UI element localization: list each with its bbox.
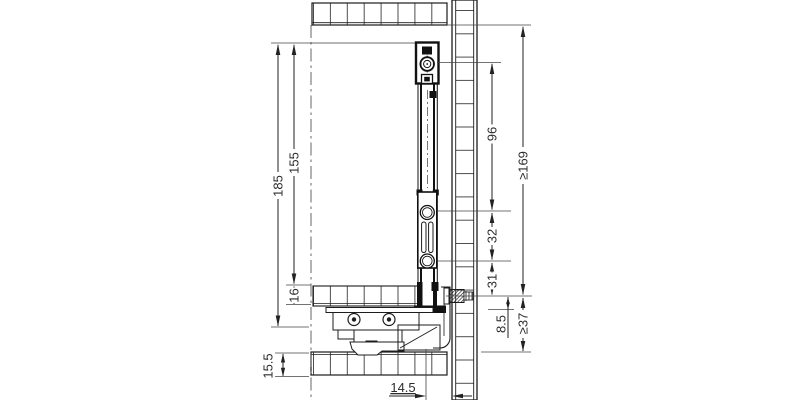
dimension-185: 185: [271, 44, 286, 327]
rear-fixing-bracket: [417, 190, 439, 269]
dim-label-8-5: 8.5: [494, 315, 509, 333]
dim-label-155: 155: [287, 152, 302, 174]
dimension-min-169: ≥169: [516, 26, 531, 295]
dim-label-96: 96: [485, 127, 500, 141]
catch-flag: [430, 91, 437, 98]
dim-label-16: 16: [287, 288, 302, 302]
drawer-side-profile: [414, 43, 446, 314]
dimension-min-37: ≥37: [516, 298, 531, 352]
dimension-155: 155: [287, 44, 302, 285]
dim-label-185: 185: [271, 175, 286, 197]
dim-label-14-5: 14.5: [390, 380, 415, 395]
dim-label-min-37: ≥37: [516, 313, 531, 335]
drawing-svg: 185 155 16 15.5: [0, 0, 800, 400]
dimension-15-5: 15.5: [261, 353, 286, 378]
rear-panel: [452, 0, 477, 400]
dim-label-32: 32: [485, 229, 500, 243]
cabinet-bottom-panel: [311, 352, 447, 375]
cabinet-top-panel: [312, 3, 447, 25]
dim-label-31: 31: [485, 274, 500, 288]
drawer-bottom-panel: [313, 286, 420, 306]
dimension-8-5: 8.5: [494, 297, 510, 338]
dim-label-15-5: 15.5: [261, 353, 276, 378]
dimension-16: 16: [287, 286, 302, 305]
dim-label-min-169: ≥169: [516, 151, 531, 180]
dimension-31: 31: [485, 263, 500, 296]
top-cap-fitting: [416, 43, 439, 84]
dimension-32: 32: [485, 213, 500, 261]
dimension-96: 96: [485, 63, 500, 211]
technical-drawing-canvas: 185 155 16 15.5: [0, 0, 800, 400]
